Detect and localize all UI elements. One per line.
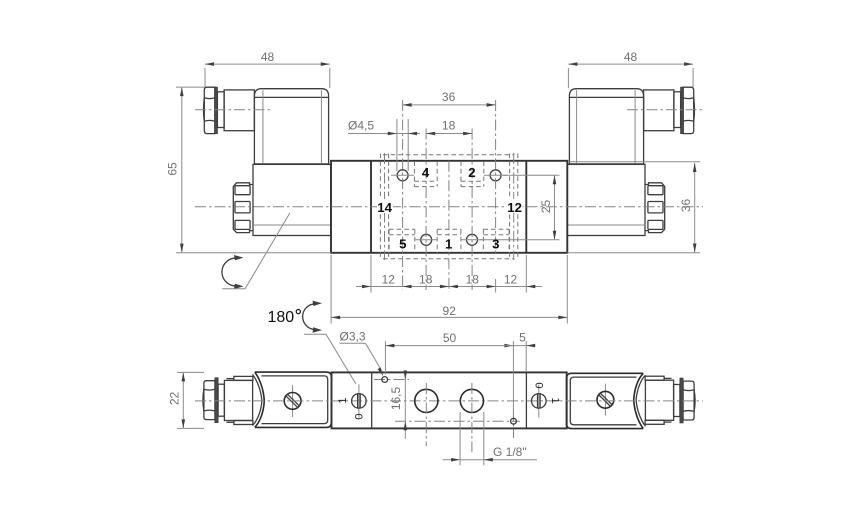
svg-text:180: 180 (268, 309, 295, 326)
svg-text:1: 1 (337, 398, 349, 404)
svg-text:12: 12 (382, 273, 396, 287)
svg-text:18: 18 (419, 273, 433, 287)
svg-text:14: 14 (377, 200, 392, 215)
svg-text:18: 18 (466, 273, 480, 287)
svg-text:1: 1 (445, 236, 452, 251)
svg-text:50: 50 (443, 331, 457, 345)
svg-text:16,5: 16,5 (389, 386, 403, 410)
svg-text:36: 36 (679, 199, 693, 213)
svg-text:25: 25 (539, 200, 553, 214)
svg-text:0: 0 (354, 414, 366, 420)
svg-text:G 1/8": G 1/8" (493, 445, 527, 459)
svg-text:22: 22 (168, 392, 182, 406)
svg-text:Ø4,5: Ø4,5 (348, 119, 374, 133)
svg-text:5: 5 (399, 236, 406, 251)
svg-text:48: 48 (624, 50, 638, 64)
svg-text:65: 65 (166, 162, 180, 176)
svg-text:5: 5 (519, 331, 526, 345)
svg-text:92: 92 (443, 304, 457, 318)
svg-text:12: 12 (507, 200, 522, 215)
svg-text:2: 2 (468, 165, 475, 180)
svg-text:Ø3,3: Ø3,3 (340, 329, 366, 343)
svg-text:0: 0 (532, 382, 544, 388)
svg-text:4: 4 (422, 165, 430, 180)
svg-text:36: 36 (442, 90, 456, 104)
svg-text:48: 48 (261, 50, 275, 64)
svg-text:18: 18 (442, 119, 456, 133)
svg-text:12: 12 (504, 273, 518, 287)
svg-text:3: 3 (492, 236, 499, 251)
svg-text:1: 1 (549, 398, 561, 404)
